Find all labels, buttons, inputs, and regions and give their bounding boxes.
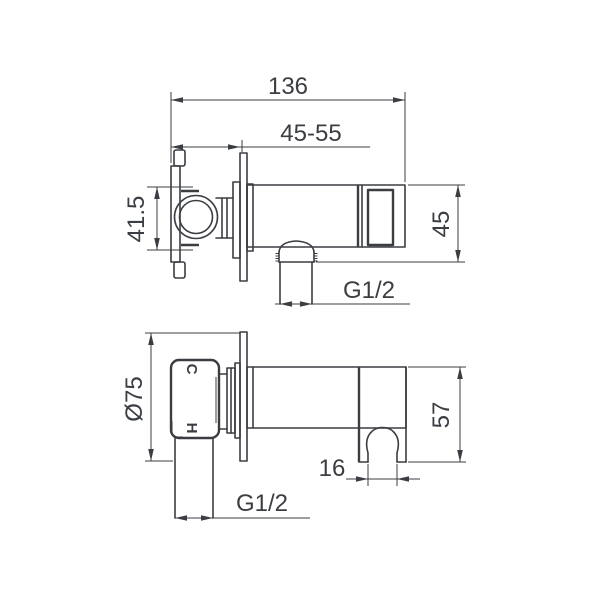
dim-41-5-label: 41.5 bbox=[123, 196, 150, 243]
dim-45-label: 45 bbox=[428, 211, 455, 238]
dim-dia-75: Ø75 bbox=[121, 333, 240, 461]
plan-bar-body bbox=[247, 367, 406, 428]
dim-45: 45 bbox=[316, 185, 465, 262]
dim-g12-inlet-label: G1/2 bbox=[236, 490, 288, 517]
front-ring bbox=[247, 184, 253, 251]
drawing-page: 136 45-55 41.5 45 bbox=[0, 0, 600, 600]
dim-136-label: 136 bbox=[268, 73, 308, 100]
plan-wall-flange bbox=[240, 332, 247, 461]
holder-keyhole-notch bbox=[367, 428, 399, 463]
side-view: 136 45-55 41.5 45 bbox=[123, 73, 465, 307]
dim-16-label: 16 bbox=[319, 455, 346, 482]
wall-flange bbox=[240, 153, 247, 281]
hot-port-label: H bbox=[183, 423, 200, 434]
dim-57-label: 57 bbox=[428, 402, 455, 429]
outlet-thread-knurl bbox=[276, 254, 318, 262]
dim-g12-outlet: G1/2 bbox=[275, 277, 410, 307]
holder-cup-profile bbox=[368, 190, 393, 245]
technical-drawing-canvas: 136 45-55 41.5 45 bbox=[0, 0, 600, 600]
dim-45-55: 45-55 bbox=[171, 120, 370, 152]
bracket-top-tab bbox=[174, 150, 185, 166]
cold-port-label: C bbox=[183, 364, 200, 375]
dim-g12-outlet-label: G1/2 bbox=[343, 277, 395, 304]
valve-body-outer-circle bbox=[175, 196, 218, 239]
bar-body bbox=[247, 185, 405, 247]
dim-57: 57 bbox=[408, 367, 466, 462]
plan-view: C H Ø75 bbox=[121, 332, 466, 521]
dim-16: 16 bbox=[319, 455, 420, 486]
dim-dia-75-label: Ø75 bbox=[121, 376, 148, 421]
dim-45-55-label: 45-55 bbox=[280, 120, 341, 147]
bracket-bottom-tab bbox=[174, 262, 185, 278]
valve-body-inner-circle bbox=[180, 201, 213, 234]
collar bbox=[233, 182, 240, 258]
dim-41-5: 41.5 bbox=[123, 187, 193, 250]
dim-g12-inlet: G1/2 bbox=[175, 490, 310, 521]
